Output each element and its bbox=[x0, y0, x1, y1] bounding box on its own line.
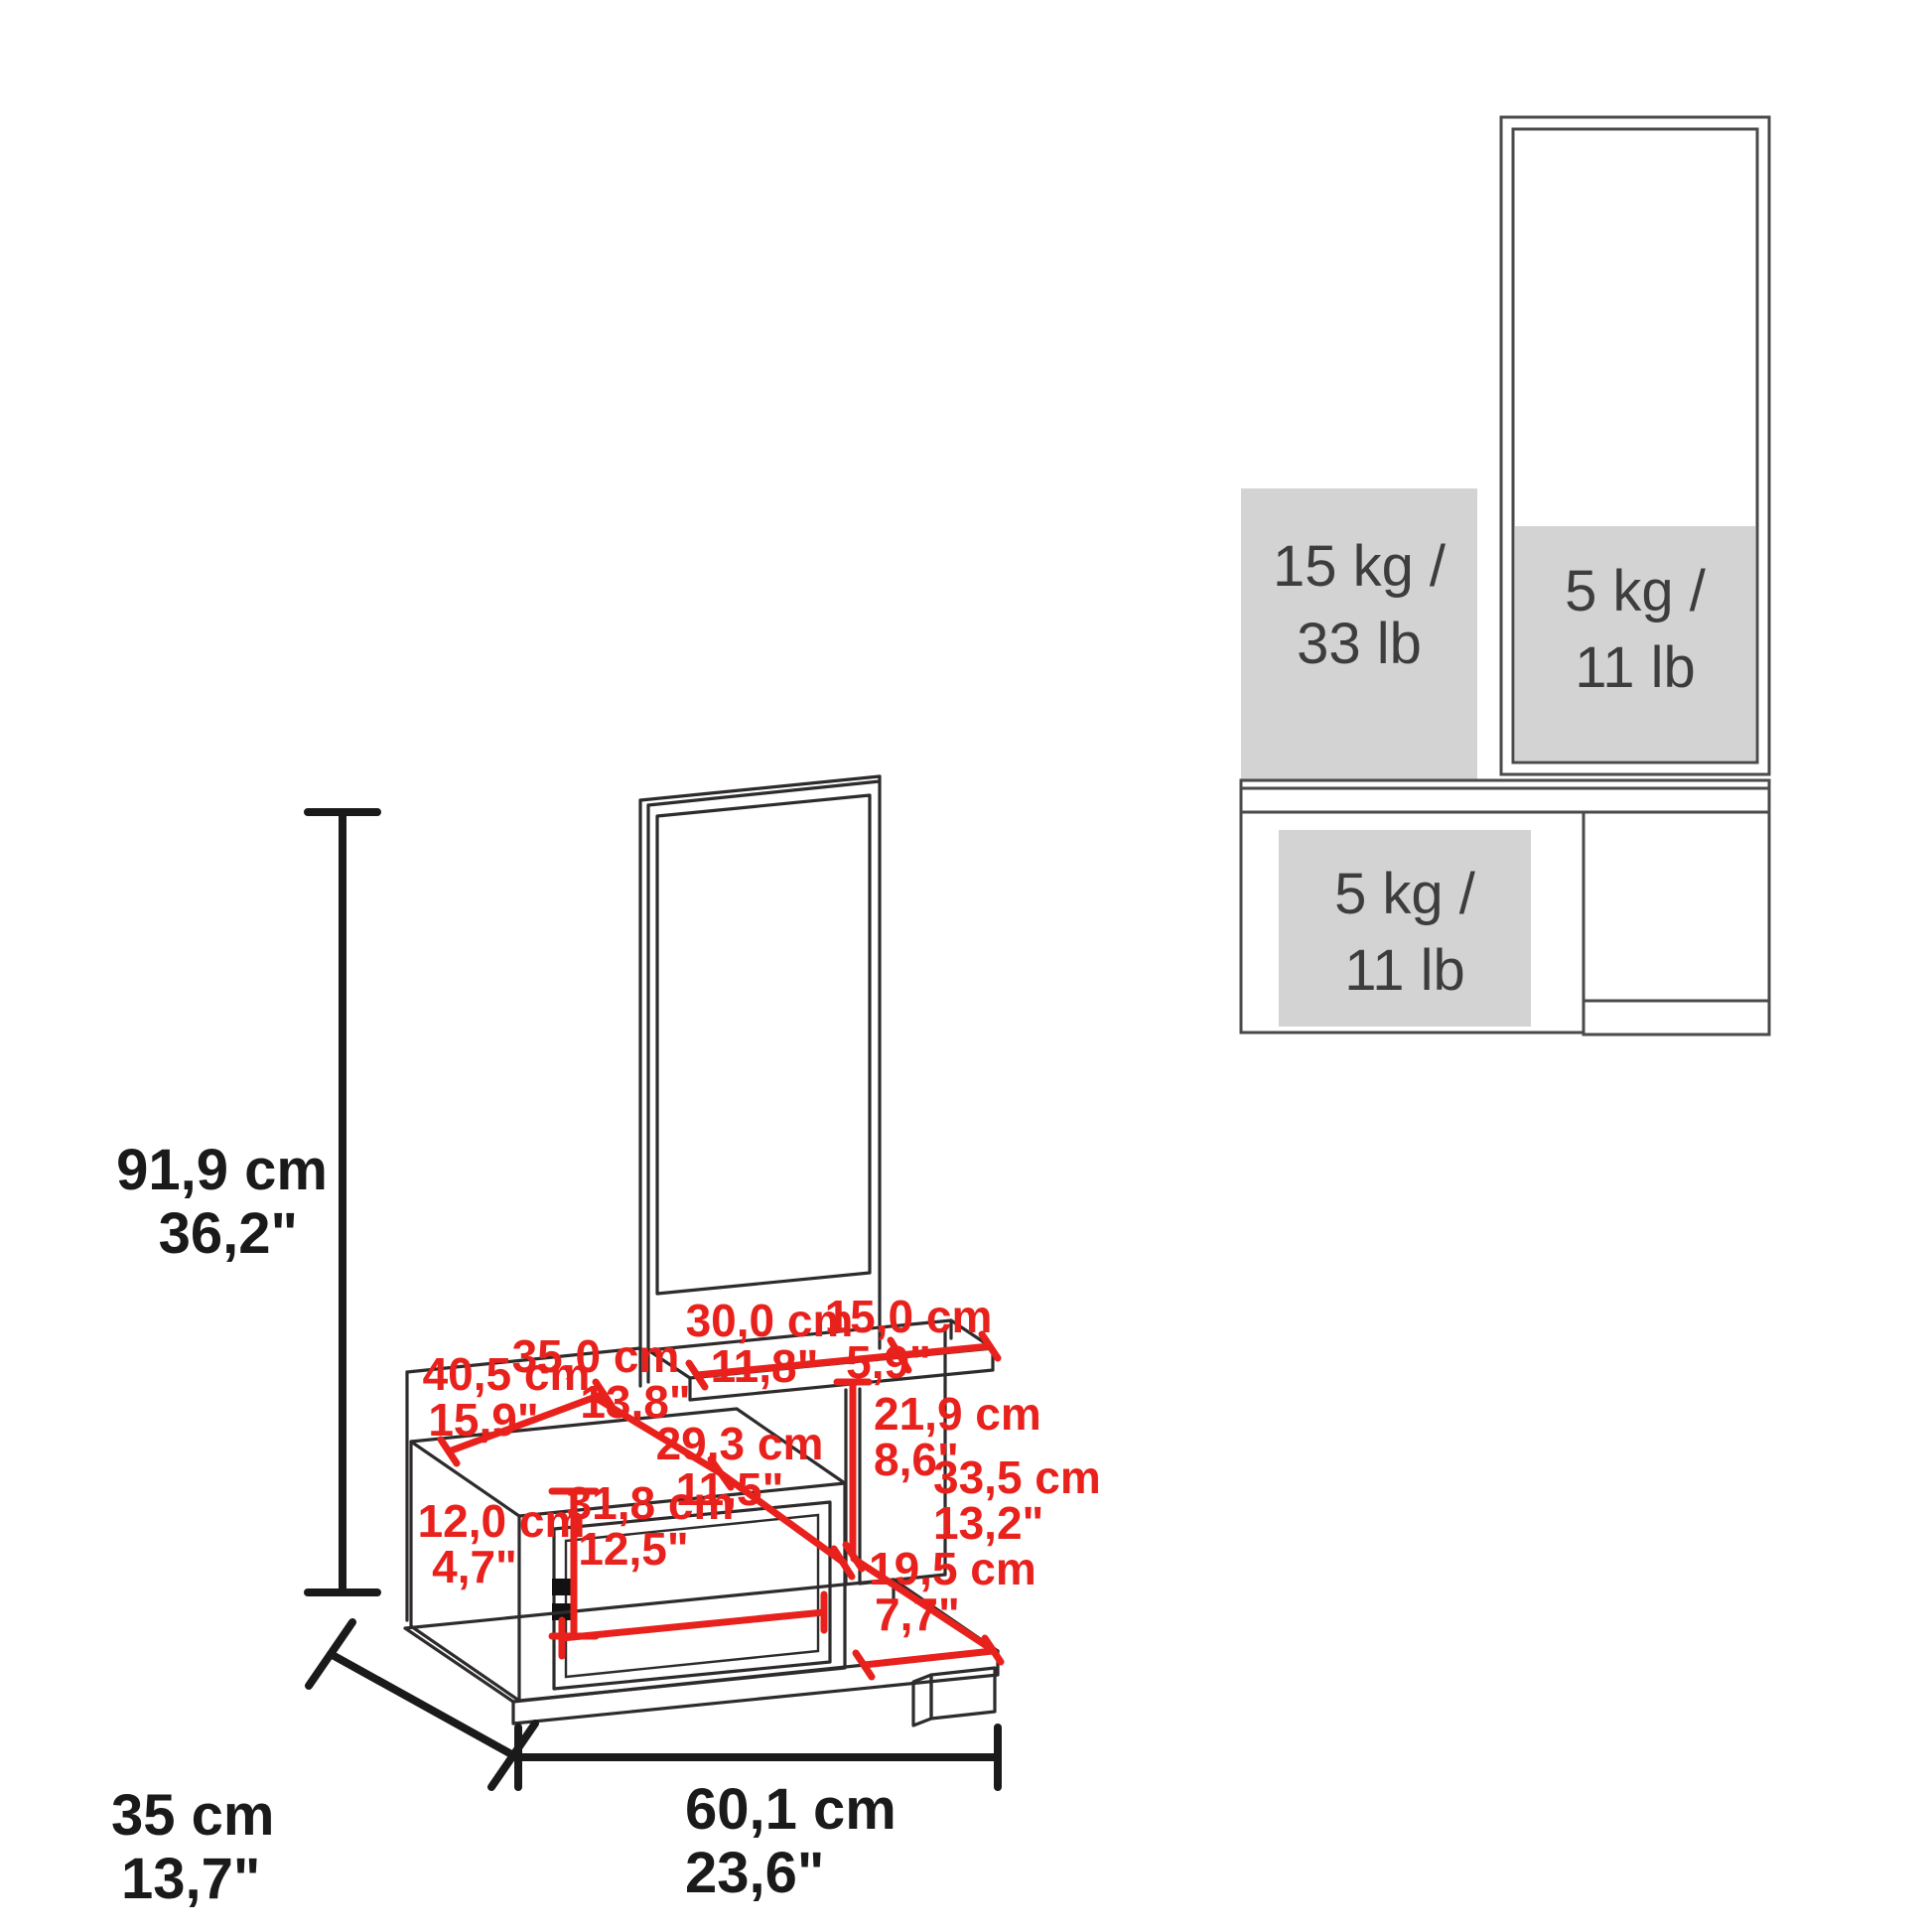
front-backing-panel bbox=[1584, 812, 1769, 1035]
dim-line-drawer-width bbox=[562, 1612, 824, 1638]
dim-top-width-metric: 35,0 cm bbox=[512, 1330, 680, 1382]
load-capacity-view: 5 kg / 11 lb 15 kg / 33 lb 5 kg / 11 lb bbox=[1241, 117, 1769, 1035]
diagram-canvas: 30,0 cm 11,8" 15,0 cm 5,9" 40,5 cm 15,9"… bbox=[0, 0, 1932, 1932]
dim-drawer-height-imperial: 4,7" bbox=[432, 1541, 517, 1592]
mirror-shelf-capacity-lb: 11 lb bbox=[1575, 635, 1695, 700]
hinge-top bbox=[552, 1579, 572, 1595]
dim-line-base-front-span bbox=[864, 1651, 993, 1665]
overall-width-metric: 60,1 cm bbox=[685, 1777, 897, 1842]
dim-compartment-height-metric: 21,9 cm bbox=[874, 1388, 1041, 1440]
overall-depth-imperial: 13,7" bbox=[121, 1847, 260, 1911]
dim-base-front-span-metric: 19,5 cm bbox=[869, 1543, 1036, 1594]
dim-line-overall-depth bbox=[331, 1654, 513, 1755]
dim-shelf-right-metric: 15,0 cm bbox=[825, 1291, 993, 1342]
dim-base-right-depth-metric: 33,5 cm bbox=[933, 1451, 1101, 1503]
dim-drawer-height-metric: 12,0 cm bbox=[418, 1495, 586, 1547]
overall-height-metric: 91,9 cm bbox=[116, 1138, 328, 1202]
dim-base-front-span-imperial: 7,7" bbox=[875, 1588, 960, 1640]
cabinet-capacity-kg: 5 kg / bbox=[1334, 862, 1476, 926]
front-shelf-strip bbox=[1241, 780, 1769, 812]
diagram-svg: 30,0 cm 11,8" 15,0 cm 5,9" 40,5 cm 15,9"… bbox=[0, 0, 1932, 1932]
mirror-shelf-capacity-kg: 5 kg / bbox=[1565, 559, 1707, 623]
cabinet-capacity-lb: 11 lb bbox=[1344, 938, 1464, 1003]
dim-base-right-depth-imperial: 13,2" bbox=[933, 1497, 1043, 1549]
upper-shelf-capacity-kg: 15 kg / bbox=[1273, 534, 1447, 599]
dim-drawer-width-imperial: 12,5" bbox=[578, 1523, 688, 1575]
upper-shelf-capacity-lb: 33 lb bbox=[1297, 612, 1422, 676]
overall-height-imperial: 36,2" bbox=[159, 1201, 298, 1266]
dim-top-depth-imperial: 15,9" bbox=[428, 1394, 538, 1446]
dim-drawer-width-metric: 31,8 cm bbox=[567, 1477, 735, 1529]
overall-width-imperial: 23,6" bbox=[685, 1841, 824, 1905]
dim-compartment-width-metric: 29,3 cm bbox=[656, 1418, 824, 1469]
isometric-view: 30,0 cm 11,8" 15,0 cm 5,9" 40,5 cm 15,9"… bbox=[111, 776, 1101, 1911]
overall-depth-metric: 35 cm bbox=[111, 1783, 274, 1848]
dim-shelf-right-imperial: 5,9" bbox=[846, 1336, 931, 1388]
dim-shelf-left-imperial: 11,8" bbox=[711, 1340, 819, 1392]
